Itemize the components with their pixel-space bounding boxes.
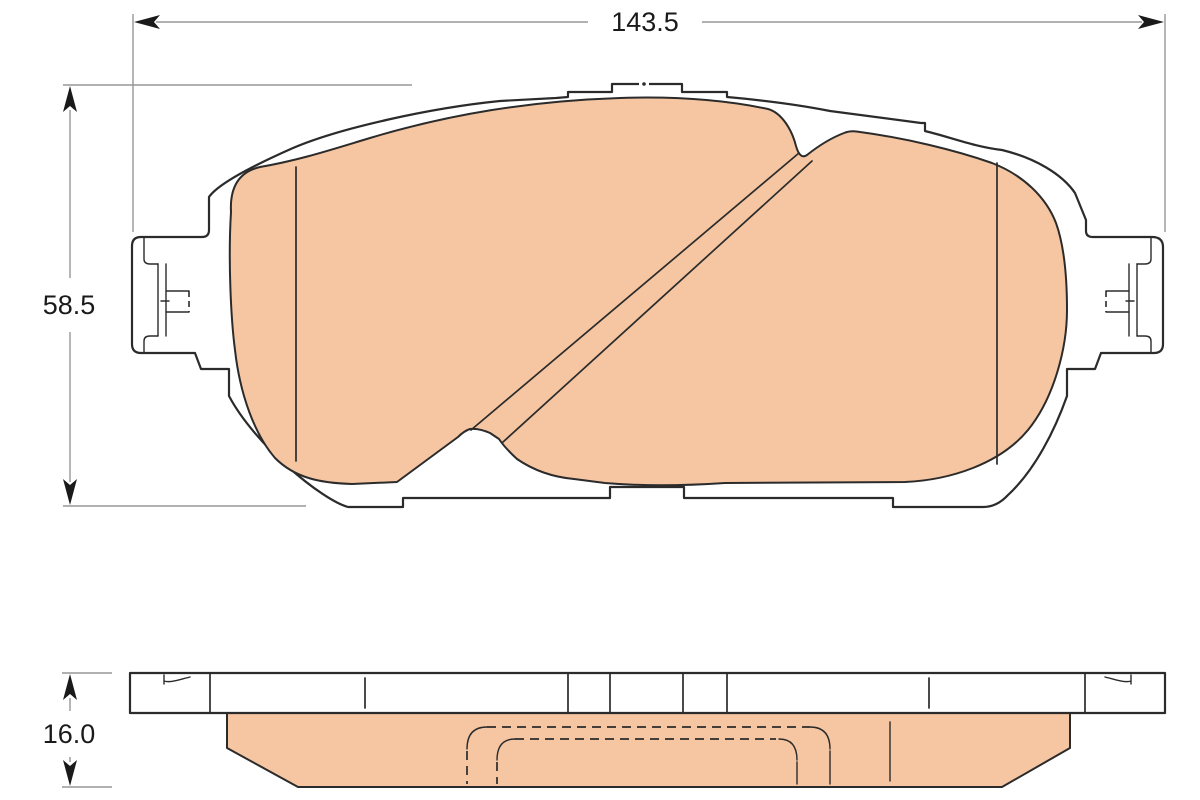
tab-centerline-dot: [642, 82, 646, 86]
dimension-thickness-label: 16.0: [43, 719, 96, 749]
arrowhead-up-icon: [63, 674, 77, 700]
arrowhead-up-icon: [63, 86, 77, 112]
front-view: [132, 79, 1163, 507]
backing-plate-side: [130, 673, 1165, 713]
arrowhead-down-icon: [63, 760, 77, 786]
brake-pad-drawing: 143.5 58.5 16.0: [0, 0, 1200, 800]
side-view: [130, 673, 1165, 787]
friction-material-side: [227, 713, 1070, 787]
dimension-width-label: 143.5: [611, 7, 679, 37]
dimension-height-label: 58.5: [43, 290, 96, 320]
arrowhead-down-icon: [63, 479, 77, 505]
technical-drawing-canvas: 143.5 58.5 16.0: [0, 0, 1200, 800]
friction-material-front: [230, 98, 1067, 486]
dimension-thickness: 16.0: [43, 673, 112, 787]
